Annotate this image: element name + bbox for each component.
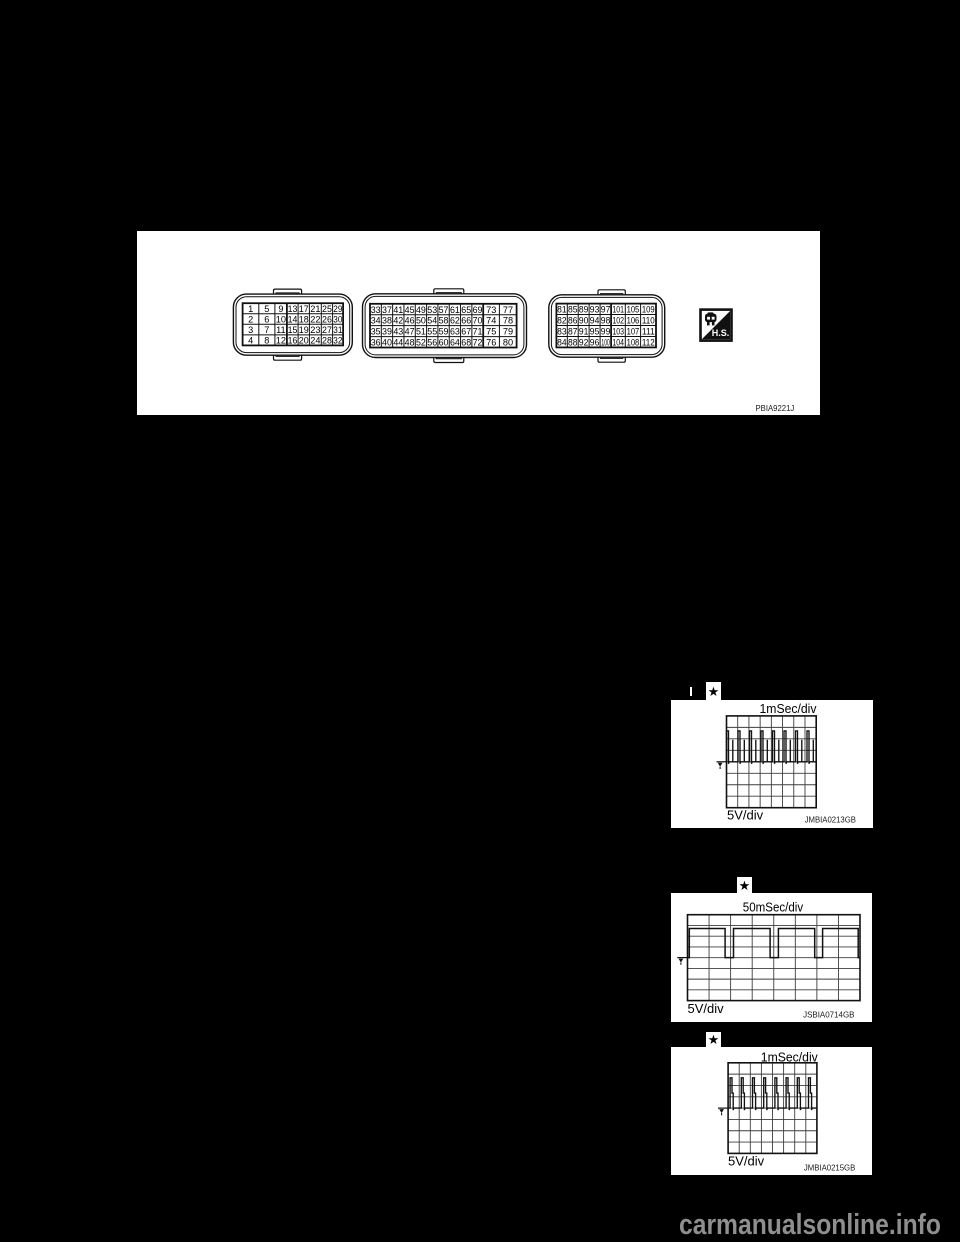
svg-text:63: 63 <box>450 327 460 337</box>
svg-text:6: 6 <box>264 315 269 325</box>
svg-text:64: 64 <box>450 338 460 348</box>
svg-text:67: 67 <box>461 327 471 337</box>
svg-text:23: 23 <box>310 325 320 335</box>
svg-text:95: 95 <box>590 326 600 336</box>
svg-text:JSBIA0714GB: JSBIA0714GB <box>803 1010 855 1020</box>
svg-text:55: 55 <box>427 327 437 337</box>
svg-text:12: 12 <box>276 336 286 346</box>
svg-text:14: 14 <box>288 315 298 325</box>
svg-text:33: 33 <box>371 305 381 315</box>
svg-text:9: 9 <box>278 304 283 314</box>
svg-text:74: 74 <box>486 316 496 326</box>
svg-text:43: 43 <box>393 327 403 337</box>
svg-text:81: 81 <box>557 305 567 315</box>
svg-text:7: 7 <box>264 325 269 335</box>
svg-text:89: 89 <box>579 305 589 315</box>
svg-text:102: 102 <box>612 316 624 326</box>
svg-text:99: 99 <box>601 326 611 336</box>
svg-text:50mSec/div: 50mSec/div <box>743 900 804 915</box>
svg-text:97: 97 <box>601 305 611 315</box>
svg-text:20: 20 <box>299 336 309 346</box>
svg-text:110: 110 <box>642 316 655 326</box>
svg-text:28: 28 <box>322 336 332 346</box>
svg-text:24: 24 <box>310 336 320 346</box>
svg-text:40: 40 <box>382 338 392 348</box>
svg-text:49: 49 <box>416 305 426 315</box>
svg-text:38: 38 <box>382 316 392 326</box>
svg-text:2: 2 <box>248 315 253 325</box>
svg-text:82: 82 <box>557 316 567 326</box>
svg-text:21: 21 <box>310 304 320 314</box>
svg-text:46: 46 <box>405 316 415 326</box>
svg-text:88: 88 <box>568 337 578 347</box>
svg-text:98: 98 <box>601 316 611 326</box>
svg-text:5V/div: 5V/div <box>728 1154 765 1169</box>
svg-text:112: 112 <box>642 337 655 347</box>
svg-text:11: 11 <box>276 325 286 335</box>
svg-text:30: 30 <box>333 315 342 325</box>
svg-text:3: 3 <box>248 325 253 335</box>
svg-text:29: 29 <box>333 304 342 314</box>
svg-text:26: 26 <box>322 315 332 325</box>
svg-text:93: 93 <box>590 305 600 315</box>
svg-text:16: 16 <box>288 336 298 346</box>
svg-text:78: 78 <box>503 316 513 326</box>
svg-text:13: 13 <box>288 304 298 314</box>
svg-text:5: 5 <box>264 304 269 314</box>
svg-text:8: 8 <box>264 336 269 346</box>
svg-text:42: 42 <box>393 316 403 326</box>
svg-text:45: 45 <box>405 305 415 315</box>
svg-text:JMBIA0215GB: JMBIA0215GB <box>804 1162 856 1172</box>
svg-text:100: 100 <box>601 337 609 347</box>
svg-text:86: 86 <box>568 316 578 326</box>
svg-text:104: 104 <box>612 337 624 347</box>
svg-text:75: 75 <box>486 327 496 337</box>
svg-text:79: 79 <box>503 327 513 337</box>
svg-text:19: 19 <box>299 325 309 335</box>
svg-text:84: 84 <box>557 337 567 347</box>
svg-text:17: 17 <box>299 304 309 314</box>
svg-text:101: 101 <box>612 305 624 315</box>
svg-text:70: 70 <box>473 316 483 326</box>
svg-text:111: 111 <box>642 326 655 336</box>
svg-text:106: 106 <box>627 316 640 326</box>
svg-text:83: 83 <box>557 326 567 336</box>
svg-text:54: 54 <box>427 316 437 326</box>
svg-text:96: 96 <box>590 337 600 347</box>
svg-text:4: 4 <box>248 336 253 346</box>
svg-text:61: 61 <box>450 305 460 315</box>
svg-text:66: 66 <box>461 316 471 326</box>
svg-text:87: 87 <box>568 326 578 336</box>
svg-text:47: 47 <box>405 327 415 337</box>
svg-text:65: 65 <box>461 305 471 315</box>
svg-text:10: 10 <box>276 315 286 325</box>
svg-text:85: 85 <box>568 305 578 315</box>
svg-text:105: 105 <box>627 305 640 315</box>
svg-text:68: 68 <box>461 338 471 348</box>
svg-text:53: 53 <box>427 305 437 315</box>
svg-text:80: 80 <box>503 338 513 348</box>
svg-text:56: 56 <box>427 338 437 348</box>
svg-text:41: 41 <box>393 305 403 315</box>
svg-text:91: 91 <box>579 326 589 336</box>
svg-text:109: 109 <box>642 305 655 315</box>
svg-text:31: 31 <box>333 325 342 335</box>
svg-text:32: 32 <box>333 336 342 346</box>
svg-text:JMBIA0213GB: JMBIA0213GB <box>805 815 857 825</box>
svg-text:15: 15 <box>288 325 298 335</box>
svg-text:50: 50 <box>416 316 426 326</box>
svg-text:35: 35 <box>371 327 381 337</box>
svg-text:57: 57 <box>439 305 449 315</box>
svg-text:37: 37 <box>382 305 392 315</box>
svg-text:39: 39 <box>382 327 392 337</box>
svg-text:H.S.: H.S. <box>712 328 730 338</box>
svg-text:1mSec/div: 1mSec/div <box>760 701 817 716</box>
svg-text:PBIA9221J: PBIA9221J <box>756 404 795 413</box>
svg-text:72: 72 <box>473 338 483 348</box>
svg-text:76: 76 <box>486 338 496 348</box>
svg-text:25: 25 <box>322 304 332 314</box>
svg-text:60: 60 <box>439 338 449 348</box>
svg-text:77: 77 <box>503 305 513 315</box>
svg-text:34: 34 <box>371 316 381 326</box>
svg-text:69: 69 <box>473 305 483 315</box>
svg-text:1: 1 <box>248 304 253 314</box>
svg-text:103: 103 <box>612 326 624 336</box>
svg-text:73: 73 <box>486 305 496 315</box>
svg-text:27: 27 <box>322 325 332 335</box>
svg-text:36: 36 <box>371 338 381 348</box>
svg-text:108: 108 <box>627 337 640 347</box>
svg-text:18: 18 <box>299 315 309 325</box>
svg-text:44: 44 <box>393 338 403 348</box>
svg-text:48: 48 <box>405 338 415 348</box>
svg-text:5V/div: 5V/div <box>688 1001 725 1016</box>
svg-text:92: 92 <box>579 337 589 347</box>
svg-text:94: 94 <box>590 316 600 326</box>
svg-text:22: 22 <box>310 315 320 325</box>
svg-text:52: 52 <box>416 338 426 348</box>
svg-text:5V/div: 5V/div <box>727 808 764 823</box>
svg-text:59: 59 <box>439 327 449 337</box>
svg-text:62: 62 <box>450 316 460 326</box>
svg-text:71: 71 <box>473 327 483 337</box>
svg-text:107: 107 <box>627 326 640 336</box>
svg-text:90: 90 <box>579 316 589 326</box>
svg-text:58: 58 <box>439 316 449 326</box>
svg-text:51: 51 <box>416 327 426 337</box>
